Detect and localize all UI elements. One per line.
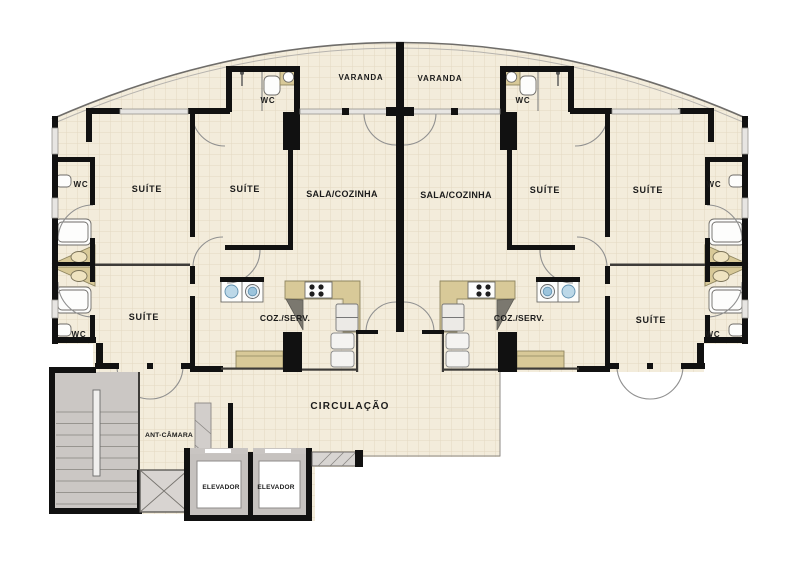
room-label-wc-top-left: WC [261,96,276,105]
elevator-door-gap [205,449,231,453]
room-label-wc-top-right: WC [516,96,531,105]
chair-icon [331,351,354,367]
room-label-sala-cozinha-left: SALA/COZINHA [306,189,378,199]
service-shaft [140,470,188,512]
vent-shaft [312,450,363,467]
burner-icon [309,284,314,289]
room-label-wc-right-upper: WC [707,180,722,189]
floor-plan-canvas: VARANDA VARANDA WC WC WC WC WC WC SUÍTE … [0,0,800,567]
stove-icon [305,282,332,298]
room-label-coz-serv-right: COZ./SERV. [494,313,544,323]
center-wall-cap [386,107,414,116]
room-label-suite-left-2: SUÍTE [230,184,261,194]
staircase [49,367,142,514]
burner-icon [309,291,314,296]
bathtub-inner [58,222,88,242]
burner-icon [318,291,323,296]
room-label-varanda-right: VARANDA [417,74,462,83]
washer-drum-icon [248,287,257,296]
toilet-icon [56,175,71,187]
room-label-coz-serv-left: COZ./SERV. [260,313,310,323]
chair-icon [331,333,354,349]
tank-basin-icon [225,285,238,298]
burner-icon [318,284,323,289]
stair-rail [93,390,100,476]
sink-basin-icon [71,271,87,282]
toilet-icon [264,76,280,95]
room-label-varanda-left: VARANDA [338,73,383,82]
room-label-suite-left-1: SUÍTE [132,184,163,194]
room-label-elevador-1: ELEVADOR [202,484,239,491]
elevator-door-gap [265,449,291,453]
room-label-ant-camara: ANT-CÂMARA [145,430,193,439]
room-label-circulacao: CIRCULAÇÃO [310,399,389,412]
room-label-suite-right-1: SUÍTE [530,185,561,195]
toilet-icon [56,324,71,336]
room-label-suite-right-bottom: SUÍTE [636,315,667,325]
sink-basin-icon [71,252,87,263]
room-label-wc-left-upper: WC [74,180,89,189]
kitchen-table-icon [236,351,283,369]
room-label-suite-right-2: SUÍTE [633,185,664,195]
room-label-suite-left-bottom: SUÍTE [129,312,160,322]
room-label-sala-cozinha-right: SALA/COZINHA [420,190,492,200]
washbasin-icon [283,72,293,82]
room-label-elevador-2: ELEVADOR [257,484,294,491]
room-label-wc-right-lower: WC [706,330,721,339]
room-label-wc-left-lower: WC [72,330,87,339]
floor-plan-page: VARANDA VARANDA WC WC WC WC WC WC SUÍTE … [0,0,800,567]
